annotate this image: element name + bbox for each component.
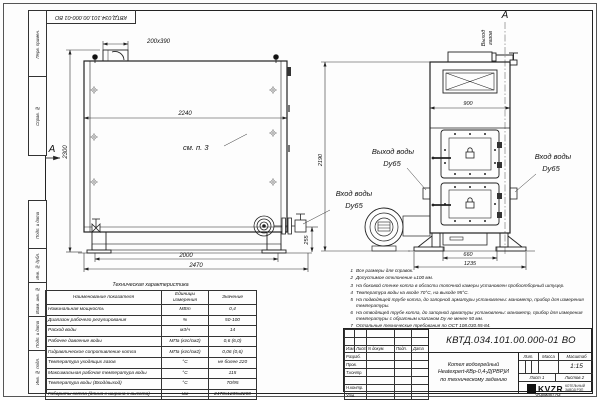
gas-outlet xyxy=(448,52,518,65)
note-item: 3На боковой стенке котла в области топоч… xyxy=(346,283,589,289)
section-a-label: А xyxy=(48,144,56,155)
note-item: 5На подводящей трубе котла, до запорной … xyxy=(346,297,589,309)
gas-outlet-label-1: Выход xyxy=(481,30,487,47)
gas-outlet-label-2: газов xyxy=(488,31,494,45)
table-row: Диапазон рабочего регулирования%50-100 xyxy=(46,315,257,326)
water-outlet-flange xyxy=(423,188,430,199)
table-row: Номинальная мощностьМВт0,4 xyxy=(46,305,257,316)
tech-table: Наименование показателя Единицы измерени… xyxy=(45,290,257,400)
dim-255-label: 255 xyxy=(304,234,310,245)
water-inlet-dn-label: Dy65 xyxy=(345,201,363,210)
drain-valve-icon xyxy=(92,219,100,232)
signature-header-row: Изм. Лист N докум. Подп. Дата xyxy=(345,345,429,353)
table-row: Гидравлическое сопротивление котлаМПа (к… xyxy=(46,347,257,358)
table-row: Габариты котла (длина х ширина х высота)… xyxy=(46,389,257,400)
table-row: Температура уходящих газов°Сне более 220 xyxy=(46,357,257,368)
note-item: 1Все размеры для справок. xyxy=(346,268,589,274)
lower-door xyxy=(432,183,502,225)
see-note-label: см. п. 3 xyxy=(183,143,209,152)
table-row: Рабочее давление водыМПа (кгс/см2)0,6 (6… xyxy=(46,336,257,347)
col-header: Значение xyxy=(209,291,257,305)
note-item: 4Температура воды на входе 70°С, на выхо… xyxy=(346,290,589,296)
tech-table-title: Техническая характеристика xyxy=(45,281,256,290)
scale-header: Масштаб xyxy=(559,353,594,360)
signature-row: Пров. xyxy=(345,361,429,369)
title-block-signatures: Изм. Лист N докум. Подп. Дата Разраб. Пр… xyxy=(344,329,428,393)
dim-2240-label: 2240 xyxy=(177,111,192,117)
sheets-total: Листов 2 xyxy=(556,374,593,381)
front-view xyxy=(365,22,535,255)
sheet-number: Лист 1 xyxy=(519,374,556,381)
scale-value: 1:15 xyxy=(559,361,594,373)
signature-row: Утв. xyxy=(345,392,429,400)
note-item: 2Допустимое отклонение ±100 мм. xyxy=(346,275,589,281)
drawing-title: Котел водогрейный Heatexpert-КВр-0,4-Д(Р… xyxy=(428,353,518,393)
col-header: Единицы измерения xyxy=(162,291,209,305)
table-row: Расход водым3/ч14 xyxy=(46,326,257,337)
table-row: Максимальная рабочая температура воды°С1… xyxy=(46,368,257,379)
title-block-right: Лит. Масса Масштаб 1:15 Лист 1 Листов 2 xyxy=(518,353,593,393)
dim-2300-label: 2300 xyxy=(63,145,69,160)
front-view-labels: А Выход газов 900 2190 660 1235 Выход во… xyxy=(318,10,572,267)
format-label: Формат А3 xyxy=(505,392,591,397)
dim-chimney-label: 200х390 xyxy=(146,39,171,45)
side-legs xyxy=(78,232,312,253)
ash-drawer xyxy=(443,233,487,245)
tech-characteristics: Техническая характеристика Наименование … xyxy=(45,281,256,400)
dim-2000-label: 2000 xyxy=(178,253,193,259)
col-header: Наименование показателя xyxy=(46,291,162,305)
title-line: по техническому заданию xyxy=(440,377,507,384)
water-inlet-front-dn-label: Dy65 xyxy=(542,164,560,173)
dim-1235-label: 1235 xyxy=(464,261,477,267)
mass-header: Масса xyxy=(539,353,559,360)
table-header-row: Наименование показателя Единицы измерени… xyxy=(46,291,257,305)
lifting-lug-icon xyxy=(93,55,279,63)
dim-900-label: 900 xyxy=(463,101,473,107)
position-marks xyxy=(90,86,277,186)
notes-list: 1Все размеры для справок. 2Допустимое от… xyxy=(346,268,589,331)
water-outlet-dn-label: Dy65 xyxy=(383,159,401,168)
drawing-sheet: КВТД.034.101.00.000-01 ВО Перв. примен. … xyxy=(0,0,600,400)
note-item: 6На отводящей трубе котла, до запорной а… xyxy=(346,310,589,322)
inlet-pipe-valve xyxy=(274,214,306,234)
water-inlet-label: Вход воды xyxy=(336,189,373,198)
dim-2190-label: 2190 xyxy=(318,153,324,167)
door-lock-icon xyxy=(466,198,474,208)
title-line: Котел водогрейный xyxy=(448,362,499,369)
doc-number: КВТД.034.101.00.000-01 ВО xyxy=(428,329,593,353)
flue-connector xyxy=(103,50,128,61)
water-inlet-front-label: Вход воды xyxy=(535,152,572,161)
lit-header: Лит. xyxy=(519,353,539,360)
upper-door xyxy=(432,130,502,178)
title-block: Изм. Лист N докум. Подп. Дата Разраб. Пр… xyxy=(343,328,592,392)
signature-row: Т.контр. xyxy=(345,368,429,376)
signature-row: Разраб. xyxy=(345,353,429,361)
signature-row: Н.контр. xyxy=(345,384,429,392)
table-row: Температура воды (Вход/выход)°С70/95 xyxy=(46,379,257,390)
water-outlet-label: Выход воды xyxy=(372,147,415,156)
dim-660-label: 660 xyxy=(463,252,473,258)
water-inlet-flange xyxy=(510,188,517,199)
title-line: Heatexpert-КВр-0,4-Д(РВР)И xyxy=(438,369,509,376)
pump-flange-icon xyxy=(254,216,274,236)
explosion-window xyxy=(443,70,497,93)
section-a-view-label: А xyxy=(501,10,509,21)
fan-blower-icon xyxy=(365,208,430,251)
door-lock-icon xyxy=(466,148,474,158)
dim-2470-label: 2470 xyxy=(188,263,203,269)
